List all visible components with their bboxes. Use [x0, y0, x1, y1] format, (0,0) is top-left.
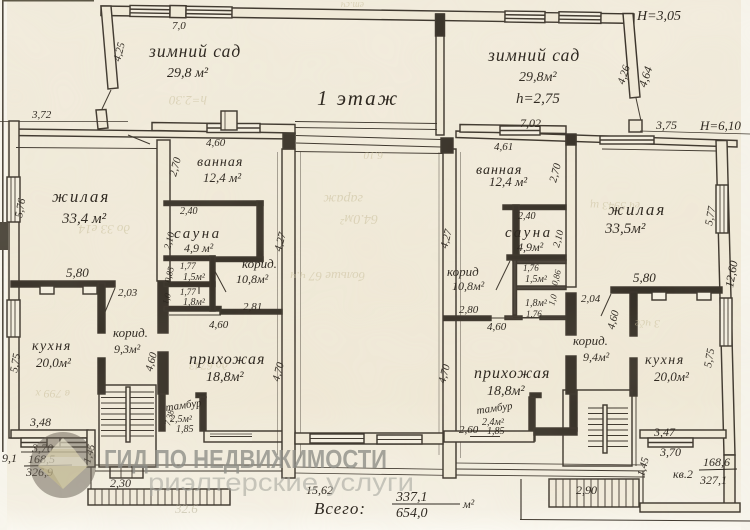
svg-text:риэлтерские услуги: риэлтерские услуги [148, 469, 414, 497]
